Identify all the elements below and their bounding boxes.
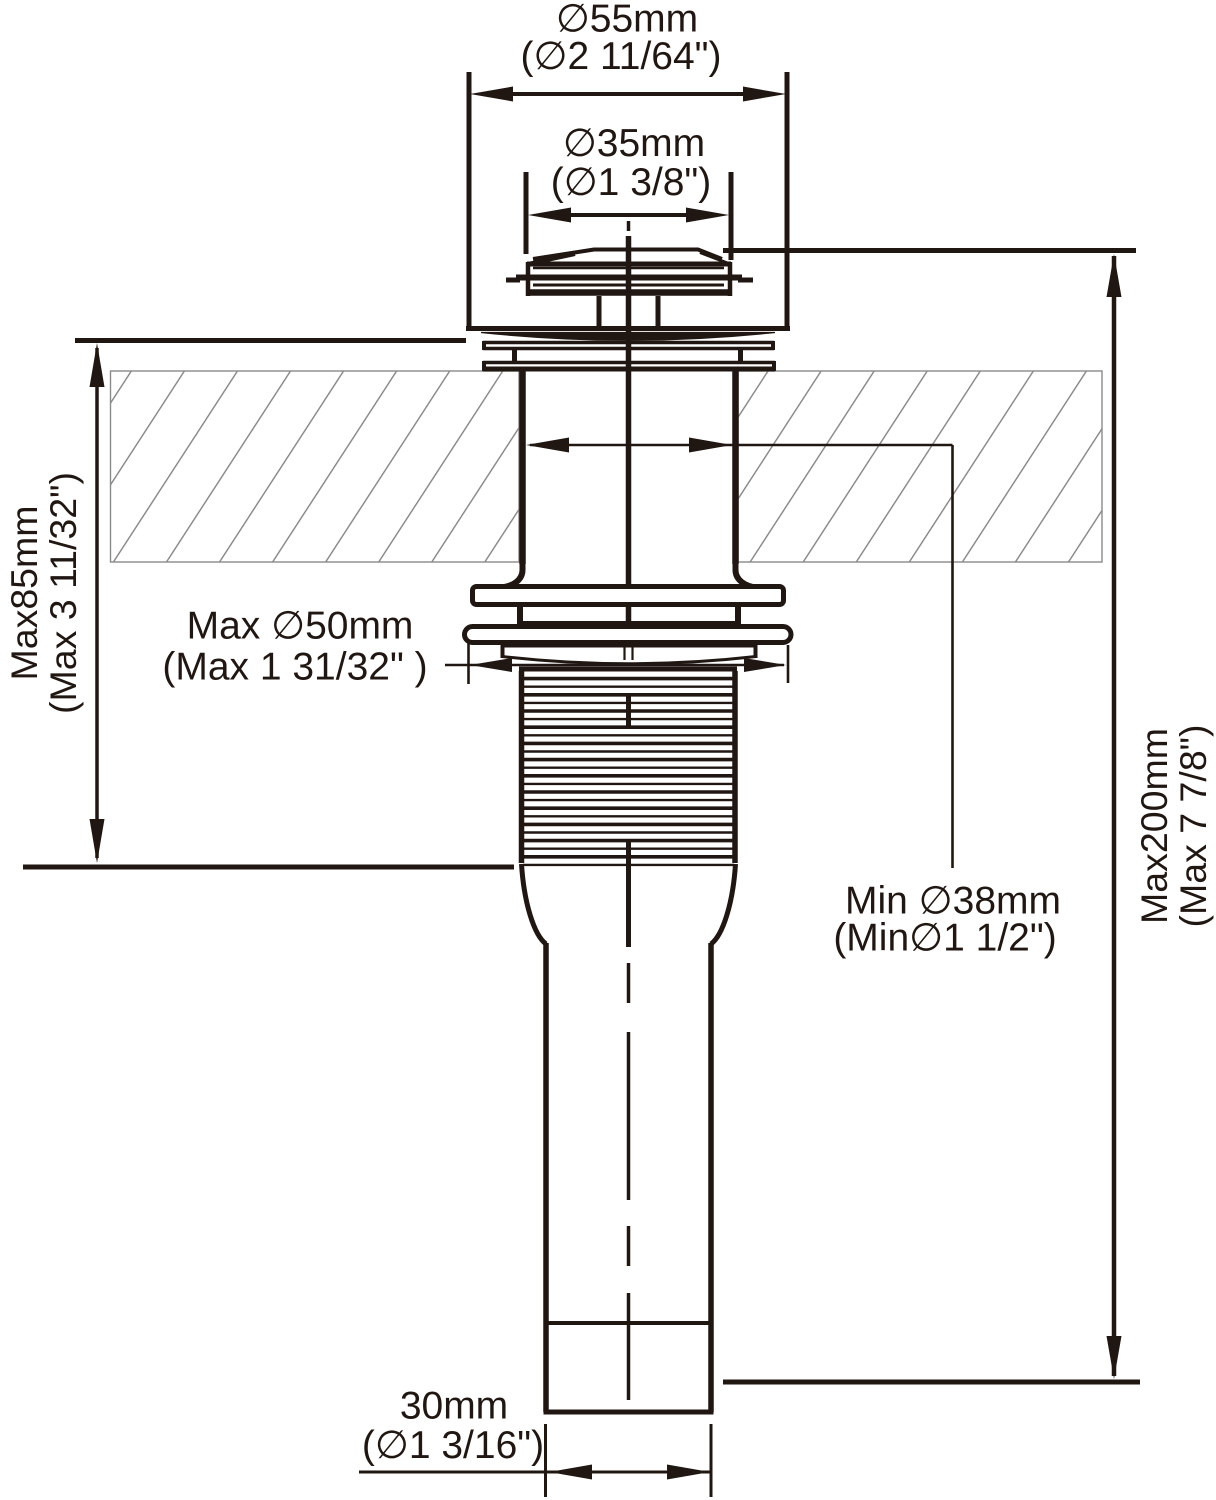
svg-text:Max ∅50mm: Max ∅50mm xyxy=(187,605,414,648)
svg-text:30mm: 30mm xyxy=(400,1385,508,1428)
svg-text:(Min∅1 1/2"): (Min∅1 1/2") xyxy=(833,917,1056,960)
svg-text:(Max 7 7/8"): (Max 7 7/8") xyxy=(1172,725,1214,928)
svg-text:∅35mm: ∅35mm xyxy=(563,122,705,165)
svg-text:(Max 1 31/32" ): (Max 1 31/32" ) xyxy=(162,646,427,689)
svg-text:Max85mm: Max85mm xyxy=(3,505,45,680)
svg-text:(∅2 11/64"): (∅2 11/64") xyxy=(520,35,721,78)
svg-text:(∅1 3/16"): (∅1 3/16") xyxy=(362,1424,544,1467)
svg-text:(∅1 3/8"): (∅1 3/8") xyxy=(551,161,712,204)
svg-text:Max200mm: Max200mm xyxy=(1133,728,1175,924)
svg-text:(Max 3 11/32"): (Max 3 11/32") xyxy=(42,472,84,714)
